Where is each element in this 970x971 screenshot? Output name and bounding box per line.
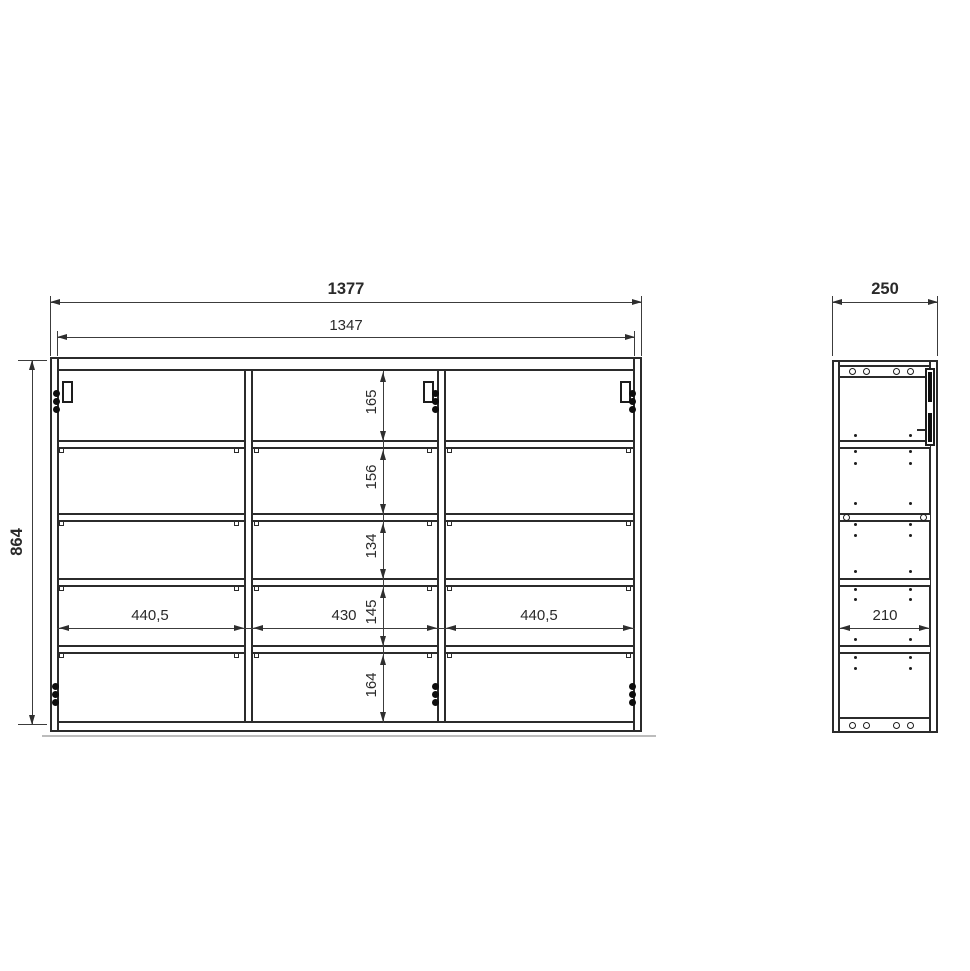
extension-line: [937, 296, 938, 356]
front-left-panel-inner-edge: [57, 359, 59, 730]
shelf-connector: [427, 448, 432, 453]
dim-line-front-height: [32, 360, 33, 725]
drop-shadow: [42, 735, 656, 737]
shelf-connector: [447, 586, 452, 591]
dimension-arrow-icon: [234, 625, 244, 631]
dimension-arrow-icon: [928, 299, 938, 305]
drill-hole: [854, 667, 857, 670]
drill-hole: [909, 638, 912, 641]
drill-hole: [909, 523, 912, 526]
front-view-outline: [50, 357, 642, 732]
shelf-connector: [59, 653, 64, 658]
dimension-arrow-icon: [380, 588, 386, 598]
extension-line: [832, 296, 833, 356]
shelf-connector: [447, 448, 452, 453]
drill-hole: [854, 502, 857, 505]
drill-hole: [854, 570, 857, 573]
dim-label-side-inner-depth: 210: [835, 608, 935, 624]
screw-hole: [907, 368, 914, 375]
screw-hole: [907, 722, 914, 729]
dimension-arrow-icon: [840, 625, 850, 631]
dimension-arrow-icon: [380, 450, 386, 460]
side-shelf-2: [840, 513, 930, 522]
drill-hole: [854, 656, 857, 659]
shelf-connector: [427, 653, 432, 658]
dimension-arrow-icon: [623, 625, 633, 631]
dimension-arrow-icon: [253, 625, 263, 631]
front-shelf-4: [59, 645, 633, 654]
hinge-knuckle-icon: [53, 390, 60, 397]
screw-hole: [893, 722, 900, 729]
wall-bracket-icon: [928, 413, 932, 442]
shelf-connector: [59, 586, 64, 591]
hinge-plate-icon: [62, 381, 73, 403]
dimension-arrow-icon: [380, 504, 386, 514]
drill-hole: [909, 450, 912, 453]
dimension-arrow-icon: [625, 334, 635, 340]
hinge-knuckle-icon: [432, 683, 439, 690]
extension-line: [641, 296, 642, 356]
screw-hole: [849, 722, 856, 729]
front-shelf-2: [59, 513, 633, 522]
dimension-arrow-icon: [57, 334, 67, 340]
front-divider-2: [437, 371, 446, 721]
dim-label-front-inner-width: 1347: [286, 318, 406, 334]
dimension-arrow-icon: [380, 372, 386, 382]
shelf-connector: [427, 586, 432, 591]
dimension-arrow-icon: [380, 523, 386, 533]
drill-hole: [909, 534, 912, 537]
wall-bracket-pin-icon: [917, 429, 925, 431]
drill-hole: [854, 638, 857, 641]
shelf-connector: [254, 586, 259, 591]
screw-hole: [863, 368, 870, 375]
dim-label-front-height: 864: [9, 482, 25, 602]
dimension-arrow-icon: [29, 715, 35, 725]
drill-hole: [909, 502, 912, 505]
dimension-arrow-icon: [919, 625, 929, 631]
shelf-bolt: [920, 514, 927, 521]
shelf-connector: [234, 521, 239, 526]
dimension-arrow-icon: [59, 625, 69, 631]
drill-hole: [854, 588, 857, 591]
shelf-bolt: [843, 514, 850, 521]
shelf-connector: [234, 448, 239, 453]
dim-label-row-5: 164: [364, 635, 380, 735]
shelf-connector: [626, 653, 631, 658]
shelf-connector: [626, 521, 631, 526]
dimension-arrow-icon: [29, 360, 35, 370]
shelf-connector: [447, 521, 452, 526]
dimension-arrow-icon: [632, 299, 642, 305]
dimension-arrow-icon: [427, 625, 437, 631]
furniture-technical-drawing: 1377 1347 864 440,5 430 440,5 165 156 13…: [0, 0, 970, 971]
dimension-arrow-icon: [380, 712, 386, 722]
front-shelf-1: [59, 440, 633, 449]
dim-label-column-right: 440,5: [489, 608, 589, 624]
wall-bracket-icon: [928, 372, 932, 402]
hinge-knuckle-icon: [432, 390, 439, 397]
dim-label-side-width: 250: [825, 281, 945, 297]
drill-hole: [909, 656, 912, 659]
dimension-arrow-icon: [380, 636, 386, 646]
front-right-panel-inner-edge: [633, 359, 635, 730]
front-divider-1: [244, 371, 253, 721]
side-bottom-rail-line: [840, 717, 929, 719]
shelf-connector: [59, 448, 64, 453]
side-view-outline: [832, 360, 938, 733]
shelf-connector: [59, 521, 64, 526]
side-shelf-3: [840, 578, 930, 587]
front-bottom-panel-inner-edge: [59, 721, 633, 723]
hinge-knuckle-icon: [52, 683, 59, 690]
side-top-rail-upper-line: [840, 365, 929, 367]
shelf-connector: [427, 521, 432, 526]
shelf-connector: [254, 448, 259, 453]
drill-hole: [854, 450, 857, 453]
side-top-rail-lower-line: [840, 376, 929, 378]
drill-hole: [854, 523, 857, 526]
drill-hole: [909, 667, 912, 670]
shelf-connector: [254, 521, 259, 526]
side-shelf-4: [840, 645, 930, 654]
shelf-connector: [254, 653, 259, 658]
hinge-knuckle-icon: [629, 390, 636, 397]
shelf-connector: [234, 653, 239, 658]
dimension-arrow-icon: [380, 569, 386, 579]
dimension-arrow-icon: [832, 299, 842, 305]
dim-line-side-inner-depth: [840, 628, 930, 629]
drill-hole: [854, 462, 857, 465]
shelf-connector: [447, 653, 452, 658]
drill-hole: [909, 598, 912, 601]
drill-hole: [909, 434, 912, 437]
screw-hole: [849, 368, 856, 375]
hinge-knuckle-icon: [629, 683, 636, 690]
side-left-panel-inner-edge: [838, 362, 840, 731]
side-shelf-1: [840, 440, 930, 449]
drill-hole: [909, 570, 912, 573]
dim-line-side-width: [832, 302, 938, 303]
dim-label-column-left: 440,5: [100, 608, 200, 624]
drill-hole: [854, 534, 857, 537]
shelf-connector: [626, 586, 631, 591]
dim-line-front-outer-width: [50, 302, 642, 303]
dim-line-column-widths: [57, 628, 635, 629]
dimension-arrow-icon: [380, 431, 386, 441]
dimension-arrow-icon: [380, 655, 386, 665]
screw-hole: [863, 722, 870, 729]
dim-line-row-heights: [383, 371, 384, 723]
drill-hole: [854, 598, 857, 601]
screw-hole: [893, 368, 900, 375]
dim-line-front-inner-width: [57, 337, 635, 338]
dim-label-front-outer-width: 1377: [286, 281, 406, 297]
dimension-arrow-icon: [50, 299, 60, 305]
front-top-panel-inner-edge: [59, 369, 633, 371]
dimension-arrow-icon: [446, 625, 456, 631]
shelf-connector: [626, 448, 631, 453]
drill-hole: [909, 462, 912, 465]
shelf-connector: [234, 586, 239, 591]
front-shelf-3: [59, 578, 633, 587]
drill-hole: [909, 588, 912, 591]
drill-hole: [854, 434, 857, 437]
extension-line: [50, 296, 51, 356]
